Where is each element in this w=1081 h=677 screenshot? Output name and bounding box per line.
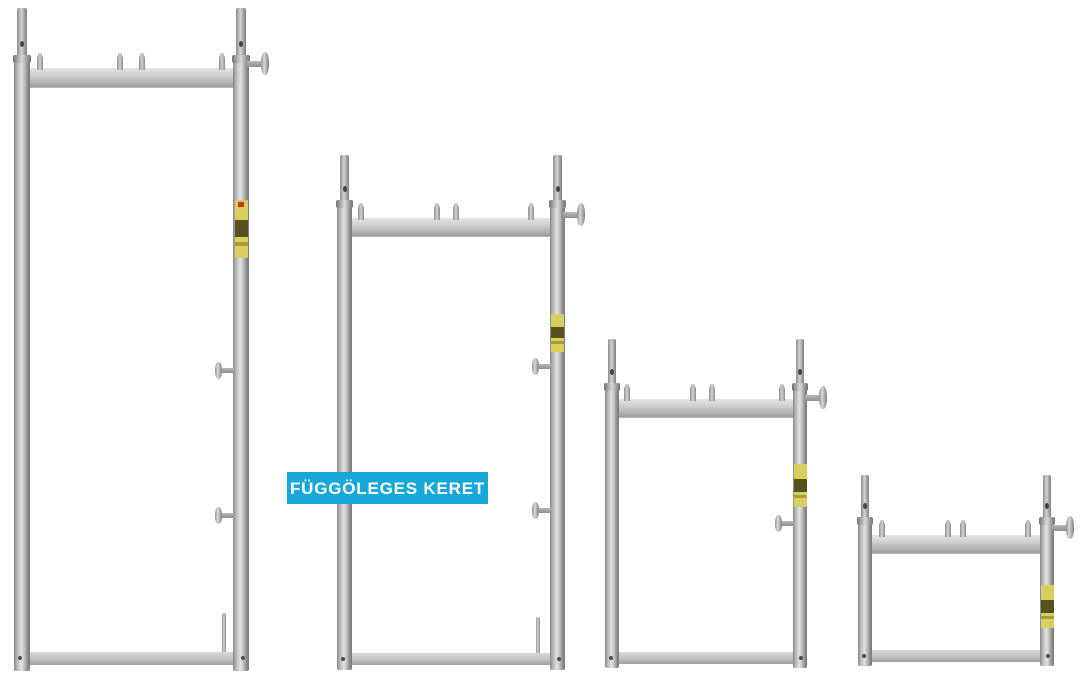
frame-3-crossbar-pin-2 <box>690 384 696 401</box>
frame-1-bottom-bar <box>14 652 249 665</box>
frame-1-sticker-red-mark <box>238 202 243 207</box>
frame-4-crossbar <box>861 535 1051 553</box>
frame-1-sticker-stripe <box>235 242 248 247</box>
frame-4-crossbar-pin-4 <box>1025 520 1031 537</box>
frame-2-left-post <box>337 206 352 670</box>
frame-3-right-spigot-hole <box>798 369 802 375</box>
frame-2-sticker-band <box>551 327 564 338</box>
frame-1-left-spigot-hole <box>20 41 24 47</box>
frame-2-crossbar-pin-2 <box>434 203 440 220</box>
frame-1-inner-knob-cap-1 <box>215 362 222 379</box>
frame-2-crossbar-pin-3 <box>453 203 459 220</box>
frame-2-crossbar-pin-4 <box>528 203 534 220</box>
frame-4-crossbar-pin-3 <box>960 520 966 537</box>
frame-3-right-post <box>793 389 807 668</box>
frame-1-crossbar-pin-3 <box>139 53 145 70</box>
product-photo-scene: FÜGGÖLEGES KERET <box>0 0 1081 677</box>
frame-4-inspection-sticker <box>1041 585 1054 628</box>
frame-4-side-knob-cap <box>1066 516 1074 539</box>
frame-2-bottom-rivet-right <box>557 657 561 661</box>
caption-text: FÜGGÖLEGES KERET <box>290 480 485 497</box>
frame-1-bottom-pin <box>222 613 226 656</box>
frame-1-inner-knob-stem-2 <box>221 513 234 518</box>
frame-4-left-spigot <box>861 475 869 519</box>
frame-3-right-spigot-collar <box>792 383 808 391</box>
frame-1-crossbar <box>17 68 246 87</box>
frame-1-sticker-band <box>235 220 248 237</box>
frame-2-inner-knob-stem-2 <box>538 508 551 513</box>
frame-2-inner-knob-stem-1 <box>538 364 551 369</box>
frame-3-side-knob-cap <box>819 386 827 409</box>
frame-4-right-spigot-collar <box>1039 517 1055 525</box>
frame-2-sticker-stripe <box>551 341 564 344</box>
frame-3-sticker-band <box>794 479 807 492</box>
frame-4-left-spigot-collar <box>857 517 873 525</box>
frame-4-sticker-stripe <box>1041 616 1054 619</box>
frame-3-crossbar-pin-1 <box>624 384 630 401</box>
frame-2-side-knob-cap <box>577 203 585 226</box>
frame-4-left-spigot-hole <box>863 503 867 509</box>
frame-1-crossbar-pin-1 <box>37 53 43 70</box>
frame-2-bottom-rivet-left <box>341 657 345 661</box>
frame-3-inspection-sticker <box>794 464 807 507</box>
frame-3-bottom-bar <box>605 652 807 664</box>
frame-4-crossbar-pin-1 <box>879 520 885 537</box>
frame-1-inner-knob-stem-1 <box>221 368 234 373</box>
frame-1-right-spigot <box>236 8 246 57</box>
frame-2-crossbar <box>340 218 562 236</box>
frame-2-bottom-bar <box>337 653 565 665</box>
frame-2-right-post <box>550 206 565 670</box>
frame-4-bottom-rivet-right <box>1046 654 1050 658</box>
frame-3-bottom-rivet-left <box>609 656 613 660</box>
frame-1-inspection-sticker <box>235 200 248 258</box>
frame-2-left-spigot-collar <box>336 200 353 208</box>
frame-3-right-spigot <box>796 339 804 385</box>
frame-1-crossbar-pin-2 <box>117 53 123 70</box>
frame-2-bottom-pin <box>536 617 540 657</box>
frame-1-bottom-rivet-right <box>241 656 245 660</box>
frame-3-left-post <box>605 389 619 668</box>
frame-3-crossbar-pin-4 <box>779 384 785 401</box>
frame-4-right-spigot-hole <box>1045 503 1049 509</box>
frame-4-bottom-bar <box>858 650 1054 662</box>
frame-2-right-spigot-collar <box>549 200 566 208</box>
frame-4-right-spigot <box>1043 475 1051 519</box>
frame-3-left-spigot-hole <box>610 369 614 375</box>
frame-1-side-knob-cap <box>261 52 269 75</box>
frame-3-inner-knob-cap-1 <box>775 515 782 532</box>
frame-1-right-post <box>233 61 249 671</box>
frame-3-left-spigot <box>608 339 616 385</box>
frame-1-left-spigot-collar <box>13 55 31 63</box>
frame-1-inner-knob-cap-2 <box>215 507 222 524</box>
frame-3-bottom-rivet-right <box>799 656 803 660</box>
frame-2-inner-knob-cap-2 <box>532 502 539 519</box>
frame-1-left-post <box>14 61 30 671</box>
frame-1-left-spigot <box>17 8 27 57</box>
frame-2-right-spigot <box>553 155 562 202</box>
caption-badge: FÜGGÖLEGES KERET <box>287 472 488 504</box>
frame-2-right-spigot-hole <box>556 186 560 192</box>
frame-2-inspection-sticker <box>551 314 564 352</box>
frame-4-sticker-band <box>1041 600 1054 613</box>
frame-4-bottom-rivet-left <box>862 654 866 658</box>
frame-3-sticker-stripe <box>794 495 807 498</box>
frame-3-crossbar <box>608 399 804 417</box>
frame-2-left-spigot-hole <box>343 186 347 192</box>
frame-4-crossbar-pin-2 <box>945 520 951 537</box>
frame-3-left-spigot-collar <box>604 383 620 391</box>
frame-2-crossbar-pin-1 <box>358 203 364 220</box>
frame-1-crossbar-pin-4 <box>219 53 225 70</box>
frame-1-bottom-rivet-left <box>18 656 22 660</box>
frame-1-right-spigot-hole <box>239 41 243 47</box>
frame-3-inner-knob-stem-1 <box>781 521 794 526</box>
frame-3-crossbar-pin-3 <box>709 384 715 401</box>
frame-4-left-post <box>858 523 872 666</box>
frame-2-left-spigot <box>340 155 349 202</box>
frame-2-inner-knob-cap-1 <box>532 358 539 375</box>
